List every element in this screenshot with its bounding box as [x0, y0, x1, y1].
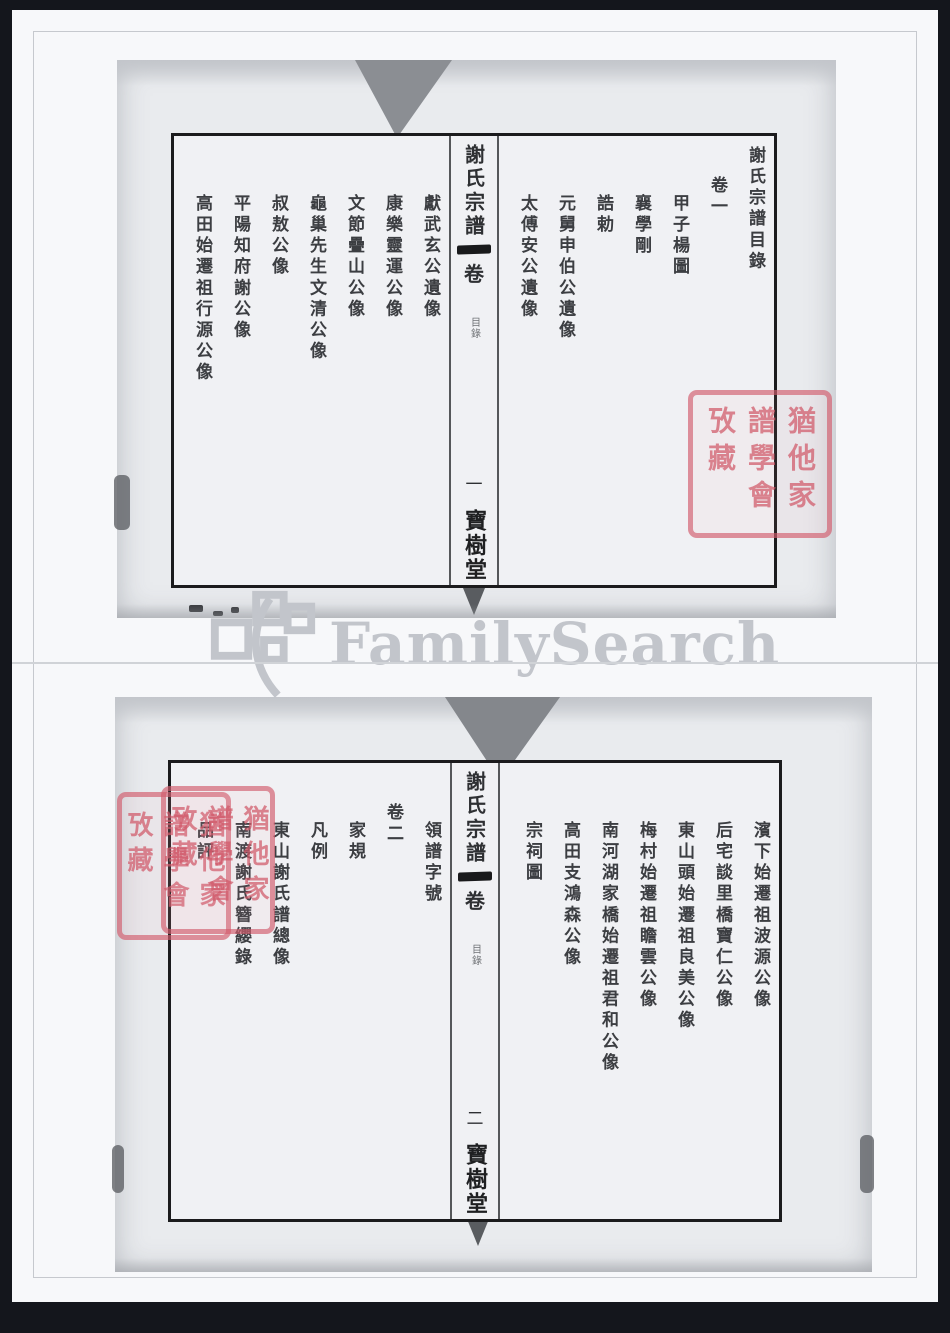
book-gutter-shadow	[355, 60, 452, 138]
toc-column: 宗祠圖	[522, 821, 542, 1219]
toc-column: 康樂靈運公像	[382, 194, 402, 585]
toc-column: 叔敖公像	[268, 194, 288, 585]
library-stamp-text: 猶他家譜學會攷藏	[700, 406, 820, 522]
spine-hall-name: 寶樹堂	[458, 509, 490, 583]
toc-column: 太傅安公遺像	[517, 194, 537, 585]
left-page-half: 獻武玄公遺像康樂靈運公像文節疊山公像龜巢先生文清公像叔敖公像平陽知府謝公像高田始…	[174, 136, 449, 585]
spine-section-label: 目錄	[468, 944, 483, 966]
scanned-page-volume-1: 獻武玄公遺像康樂靈運公像文節疊山公像龜巢先生文清公像叔敖公像平陽知府謝公像高田始…	[117, 60, 836, 618]
spine-page-number: 二	[467, 1104, 484, 1129]
toc-column: 誥勅	[593, 194, 613, 585]
toc-column: 甲子楊圖	[669, 194, 689, 585]
right-page-half: 濱下始遷祖波源公像后宅談里橋寶仁公像東山頭始遷祖良美公像梅村始遷祖瞻雲公像南河湖…	[500, 763, 779, 1219]
toc-column: 家規	[345, 821, 365, 1219]
scan-smudge	[189, 605, 203, 612]
toc-column: 龜巢先生文清公像	[306, 194, 326, 585]
scanned-page-volume-2: 領譜字號卷二家規凡例東山謝氏譜總像南渡謝氏簪纓錄品評 謝氏宗譜 卷 目錄 二 寶…	[115, 697, 872, 1272]
toc-column: 獻武玄公遺像	[420, 194, 440, 585]
family-tree-icon	[205, 588, 323, 700]
library-stamp: 猶他家譜學會攷藏	[161, 786, 275, 934]
toc-column: 領譜字號	[421, 821, 441, 1219]
toc-column: 平陽知府謝公像	[230, 194, 250, 585]
library-stamp-text: 猶他家譜學會攷藏	[164, 805, 272, 915]
toc-column: 元舅申伯公遺像	[555, 194, 575, 585]
printed-page-frame: 獻武玄公遺像康樂靈運公像文節疊山公像龜巢先生文清公像叔敖公像平陽知府謝公像高田始…	[171, 133, 777, 588]
toc-column: 卷二	[383, 803, 403, 1219]
library-stamp: 猶他家譜學會攷藏	[688, 390, 832, 538]
toc-column: 東山頭始遷祖良美公像	[674, 821, 694, 1219]
familysearch-watermark: FamilySearch	[205, 588, 780, 700]
scan-smudge	[112, 1145, 124, 1193]
spine-hall-name: 寶樹堂	[459, 1143, 491, 1217]
toc-column: 高田始遷祖行源公像	[192, 194, 212, 585]
scan-smudge	[860, 1135, 874, 1193]
spine-section-label: 目錄	[467, 317, 482, 339]
toc-column: 后宅談里橋寶仁公像	[712, 821, 732, 1219]
spine-shadow	[467, 1219, 489, 1246]
toc-column: 文節疊山公像	[344, 194, 364, 585]
scan-artifact-line	[12, 662, 938, 664]
spine-volume-char: 卷	[465, 885, 485, 914]
toc-column: 南河湖家橋始遷祖君和公像	[598, 821, 618, 1219]
document-sheet: 獻武玄公遺像康樂靈運公像文節疊山公像龜巢先生文清公像叔敖公像平陽知府謝公像高田始…	[12, 10, 938, 1302]
spine-book-title: 謝氏宗譜	[461, 771, 490, 865]
spine-fish-tail-bar	[457, 245, 491, 255]
familysearch-wordmark: FamilySearch	[329, 610, 780, 678]
spine-fish-tail-bar	[458, 872, 492, 882]
toc-column: 凡例	[307, 821, 327, 1219]
spine-page-number: 一	[466, 470, 483, 495]
scan-smudge	[114, 475, 130, 530]
page-spine: 謝氏宗譜 卷 目錄 一 寶樹堂	[449, 136, 499, 585]
page-spine: 謝氏宗譜 卷 目錄 二 寶樹堂	[450, 763, 500, 1219]
toc-column: 高田支鴻森公像	[560, 821, 580, 1219]
toc-column: 梅村始遷祖瞻雲公像	[636, 821, 656, 1219]
spine-book-title: 謝氏宗譜	[460, 144, 489, 238]
spine-volume-char: 卷	[464, 258, 484, 287]
toc-column: 襄學剛	[631, 194, 651, 585]
toc-column: 濱下始遷祖波源公像	[750, 821, 770, 1219]
